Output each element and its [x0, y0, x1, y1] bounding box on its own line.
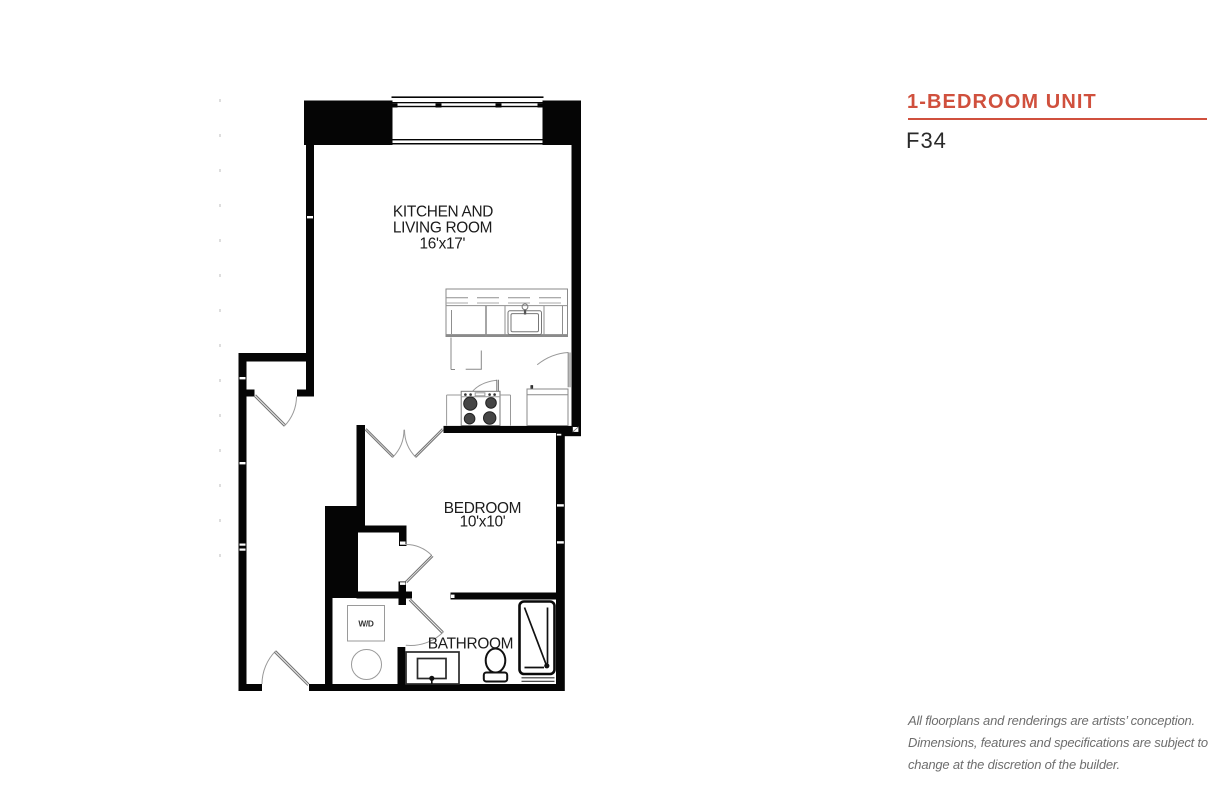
svg-text:16'x17': 16'x17' — [419, 235, 465, 252]
svg-text:W/D: W/D — [358, 619, 374, 629]
svg-text:LIVING ROOM: LIVING ROOM — [393, 219, 492, 236]
svg-text:BATHROOM: BATHROOM — [428, 636, 513, 653]
svg-text:10'x10': 10'x10' — [460, 514, 506, 531]
svg-text:KITCHEN AND: KITCHEN AND — [393, 204, 493, 221]
